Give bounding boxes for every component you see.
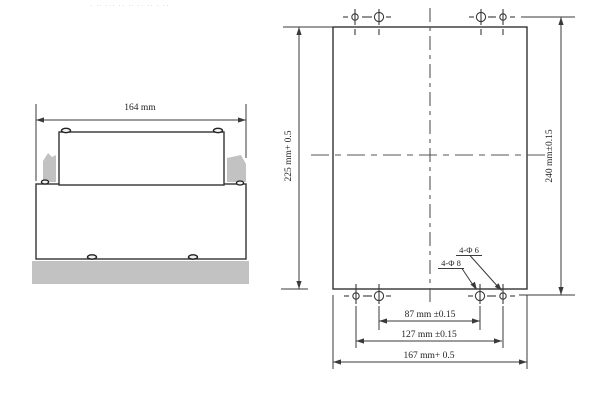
hole-callouts: 4-Φ 6 4-Φ 8 xyxy=(438,245,502,291)
top-artifact-marks: · ·· ··· ·· ·· ·· ·· · ·· xyxy=(90,3,170,9)
mounting-hole-large xyxy=(469,9,493,35)
top-mounting-holes xyxy=(343,9,515,35)
screw-icon xyxy=(236,181,243,185)
case-body xyxy=(36,184,246,259)
arrowhead-left xyxy=(356,338,364,343)
side-view-width-label: 164 mm xyxy=(124,103,156,113)
arrowhead-left xyxy=(379,318,387,323)
cutout-width-dimension: 167 mm+ 0.5 xyxy=(333,351,527,365)
outer-hole-span-dimension: 127 mm ±0.15 xyxy=(356,330,502,344)
arrowhead-right xyxy=(472,318,480,323)
mounting-hole-small xyxy=(491,9,515,35)
technical-drawing: · ·· ··· ·· ·· ·· ·· · ·· 164 mm xyxy=(0,0,600,400)
mounting-hole-small xyxy=(343,9,367,35)
mounting-hole-large xyxy=(367,9,391,35)
outer-hole-span-label: 127 mm ±0.15 xyxy=(401,330,457,340)
arrowhead-left xyxy=(333,359,341,364)
screw-icon xyxy=(88,255,97,259)
side-view-body xyxy=(32,128,249,284)
arrowhead-up xyxy=(296,27,301,35)
arrowhead-right xyxy=(238,117,246,122)
arrowhead-down xyxy=(558,287,563,295)
arrowhead-up xyxy=(558,17,563,25)
cutout-height-dimension: 225 mm+ 0.5 xyxy=(281,27,333,289)
panel-cutout-view: 4-Φ 6 4-Φ 8 225 mm+ 0.5 240 mm±0.15 xyxy=(281,8,575,369)
case-top xyxy=(59,132,224,185)
arrowhead-right xyxy=(494,338,502,343)
mounting-hole-large xyxy=(468,284,492,304)
mounting-hole-small xyxy=(344,284,368,304)
side-view: 164 mm xyxy=(32,103,249,284)
screw-icon xyxy=(62,128,71,132)
callout-large-holes-label: 4-Φ 8 xyxy=(441,258,461,268)
mounting-hole-small xyxy=(491,284,515,304)
screw-icon xyxy=(41,180,48,184)
mounting-hole-large xyxy=(367,284,391,304)
screw-icon xyxy=(214,128,223,132)
arrowhead-down xyxy=(296,281,301,289)
left-mounting-clip xyxy=(43,153,56,182)
inner-hole-span-dimension: 87 mm ±0.15 xyxy=(379,310,480,324)
arrowhead-right xyxy=(519,359,527,364)
mounting-panel-slab xyxy=(32,261,249,284)
inner-hole-span-label: 87 mm ±0.15 xyxy=(405,310,456,320)
cutout-height-label: 225 mm+ 0.5 xyxy=(284,130,294,181)
technical-drawing-page: · ·· ··· ·· ·· ·· ·· · ·· 164 mm xyxy=(0,0,600,400)
callout-small-holes-label: 4-Φ 6 xyxy=(459,245,479,255)
arrowhead-left xyxy=(36,117,44,122)
screw-icon xyxy=(189,255,198,259)
right-mounting-clip xyxy=(227,155,246,182)
hole-row-span-label: 240 mm±0.15 xyxy=(545,129,555,182)
cutout-width-label: 167 mm+ 0.5 xyxy=(403,351,454,361)
